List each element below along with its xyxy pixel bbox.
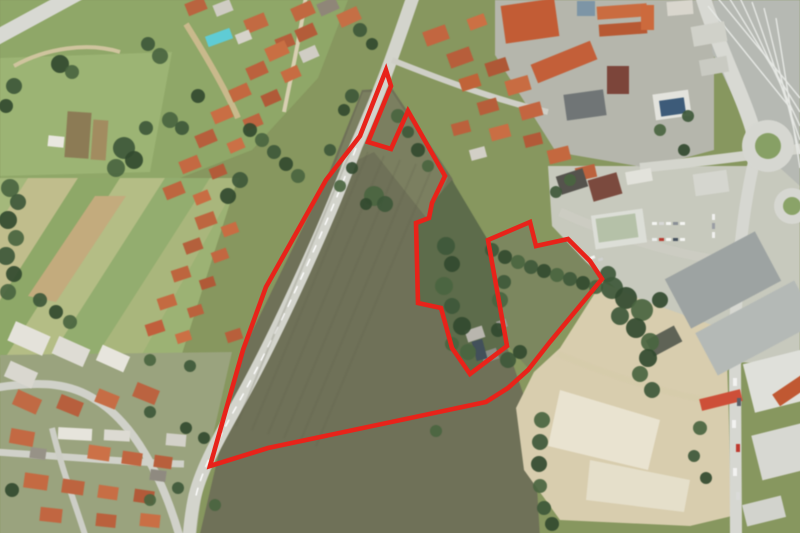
tree	[6, 266, 22, 282]
tree	[453, 317, 471, 335]
tree	[10, 194, 26, 210]
tree	[107, 159, 125, 177]
tree	[6, 78, 22, 94]
tree	[631, 299, 653, 321]
tree	[360, 198, 372, 210]
tree	[125, 151, 143, 169]
tree	[437, 237, 455, 255]
tree	[411, 143, 425, 157]
building-roof	[39, 507, 62, 523]
tree	[5, 483, 19, 497]
tree	[180, 422, 192, 434]
tree	[353, 23, 367, 37]
tree	[678, 144, 690, 156]
building-roof	[652, 238, 657, 241]
building-roof	[736, 492, 740, 500]
tree	[652, 292, 668, 308]
tree	[346, 162, 358, 174]
tree	[144, 494, 156, 506]
tree	[8, 230, 24, 246]
tree	[537, 501, 551, 515]
tree	[338, 104, 350, 116]
tree	[232, 172, 248, 188]
tree	[531, 456, 547, 472]
tree	[611, 307, 629, 325]
tree	[444, 256, 460, 272]
tree	[220, 188, 236, 204]
building-roof	[712, 223, 715, 229]
tree	[191, 89, 205, 103]
building-roof	[139, 513, 160, 528]
tree	[334, 180, 346, 192]
tree	[533, 479, 547, 493]
tree	[172, 482, 184, 494]
tree	[497, 275, 511, 289]
building-roof	[666, 222, 671, 225]
tree	[534, 412, 550, 428]
building-roof	[666, 0, 693, 16]
tree	[366, 38, 378, 50]
tree	[0, 284, 16, 300]
building-roof	[577, 1, 595, 16]
building-roof	[733, 468, 737, 476]
building-roof	[29, 447, 46, 460]
tree	[279, 157, 293, 171]
building-roof	[712, 232, 715, 238]
building-roof	[641, 5, 654, 30]
tree	[550, 268, 564, 282]
satellite-map-image	[0, 0, 800, 533]
tree	[532, 434, 548, 450]
building-roof	[693, 170, 730, 197]
building-roof	[64, 111, 91, 159]
building-roof	[563, 89, 606, 120]
building-roof	[659, 238, 664, 241]
building-roof	[121, 451, 143, 467]
building-roof	[166, 433, 187, 447]
tree	[693, 421, 707, 435]
tree	[550, 186, 562, 198]
tree	[255, 133, 269, 147]
tree	[644, 382, 660, 398]
tree	[688, 450, 700, 462]
tree	[545, 517, 559, 531]
building-roof	[733, 378, 737, 386]
building-roof	[652, 222, 657, 225]
building-roof	[737, 398, 741, 406]
tree	[267, 145, 281, 159]
tree	[33, 293, 47, 307]
tree	[184, 360, 196, 372]
building-roof	[732, 420, 736, 428]
building-roof	[47, 135, 64, 148]
building-roof	[97, 485, 119, 501]
tree	[209, 499, 221, 511]
building-roof	[58, 427, 93, 441]
tree	[513, 345, 527, 359]
tree	[563, 272, 577, 286]
building-roof	[91, 120, 109, 161]
tree	[175, 121, 189, 135]
tree	[243, 123, 257, 137]
building-roof	[712, 214, 715, 220]
tree	[377, 196, 393, 212]
tree	[152, 48, 168, 64]
tree	[524, 260, 538, 274]
building-roof	[95, 513, 116, 528]
tree	[49, 305, 63, 319]
tree	[682, 110, 694, 122]
aerial-photo-canvas	[0, 0, 800, 533]
building-roof	[673, 222, 678, 225]
tree	[345, 89, 359, 103]
building-roof	[673, 238, 678, 241]
building-roof	[680, 222, 685, 225]
tree	[639, 349, 657, 367]
tree	[641, 333, 659, 351]
tree	[576, 276, 590, 290]
tree	[444, 298, 460, 314]
building-roof	[149, 469, 166, 482]
roundabout	[755, 133, 781, 159]
tree	[402, 126, 414, 138]
tree	[654, 124, 666, 136]
tree	[144, 406, 156, 418]
tree	[144, 354, 156, 366]
tree	[511, 255, 525, 269]
building-roof	[104, 429, 131, 441]
tree	[498, 250, 512, 264]
tree	[700, 472, 712, 484]
tree	[564, 174, 576, 186]
tree	[141, 37, 155, 51]
tree	[430, 425, 442, 437]
building-roof	[666, 238, 671, 241]
tree	[626, 318, 646, 338]
tree	[537, 264, 551, 278]
tree	[435, 277, 453, 295]
building-roof	[607, 66, 629, 94]
tree	[198, 432, 210, 444]
tree	[460, 344, 476, 360]
tree	[291, 169, 305, 183]
tree	[139, 121, 153, 135]
building-roof	[501, 0, 560, 44]
building-roof	[153, 455, 172, 469]
building-roof	[680, 238, 685, 241]
building-roof	[736, 444, 740, 452]
tree	[632, 366, 648, 382]
tree	[422, 160, 434, 172]
tree	[63, 315, 77, 329]
building-roof	[659, 222, 664, 225]
tree	[65, 65, 79, 79]
tree	[324, 144, 336, 156]
